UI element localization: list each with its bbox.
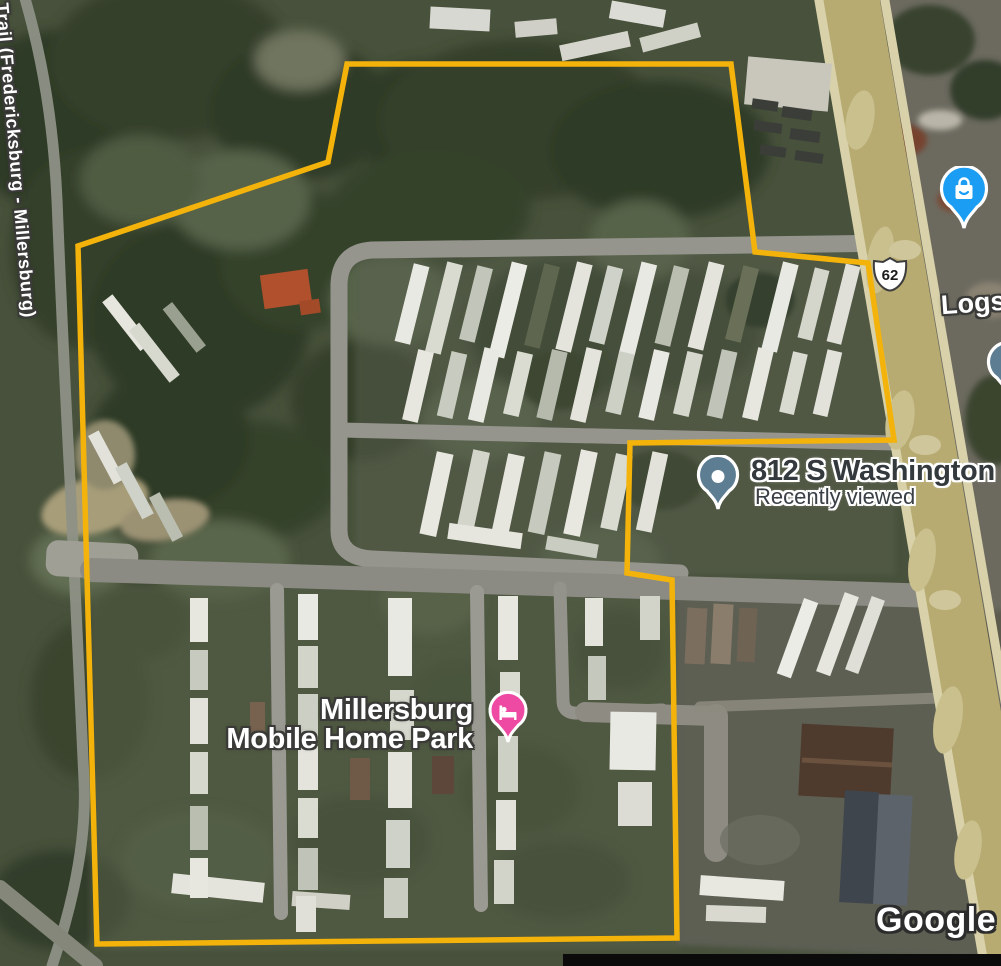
- google-watermark: Google: [876, 901, 996, 940]
- partial-place-pin[interactable]: [985, 342, 1001, 400]
- park-label-line1: Millersburg: [223, 696, 473, 725]
- route-shield-number: 62: [882, 267, 899, 284]
- park-place-label[interactable]: Millersburg Mobile Home Park: [223, 696, 473, 754]
- business-label-partial[interactable]: Logs: [940, 286, 1001, 321]
- satellite-map-view: Trail (Fredericksburg - Millersburg) 62 …: [0, 0, 1001, 966]
- shopping-pin[interactable]: [938, 166, 990, 232]
- pin-dot-icon: [712, 470, 725, 483]
- park-label-line2: Mobile Home Park: [223, 725, 473, 754]
- bottom-letterbox-bar: [563, 954, 1001, 966]
- address-pin[interactable]: [695, 455, 741, 513]
- lodging-pin[interactable]: [486, 690, 530, 746]
- address-sublabel: Recently viewed: [755, 484, 915, 510]
- route-62-shield: 62: [870, 256, 910, 292]
